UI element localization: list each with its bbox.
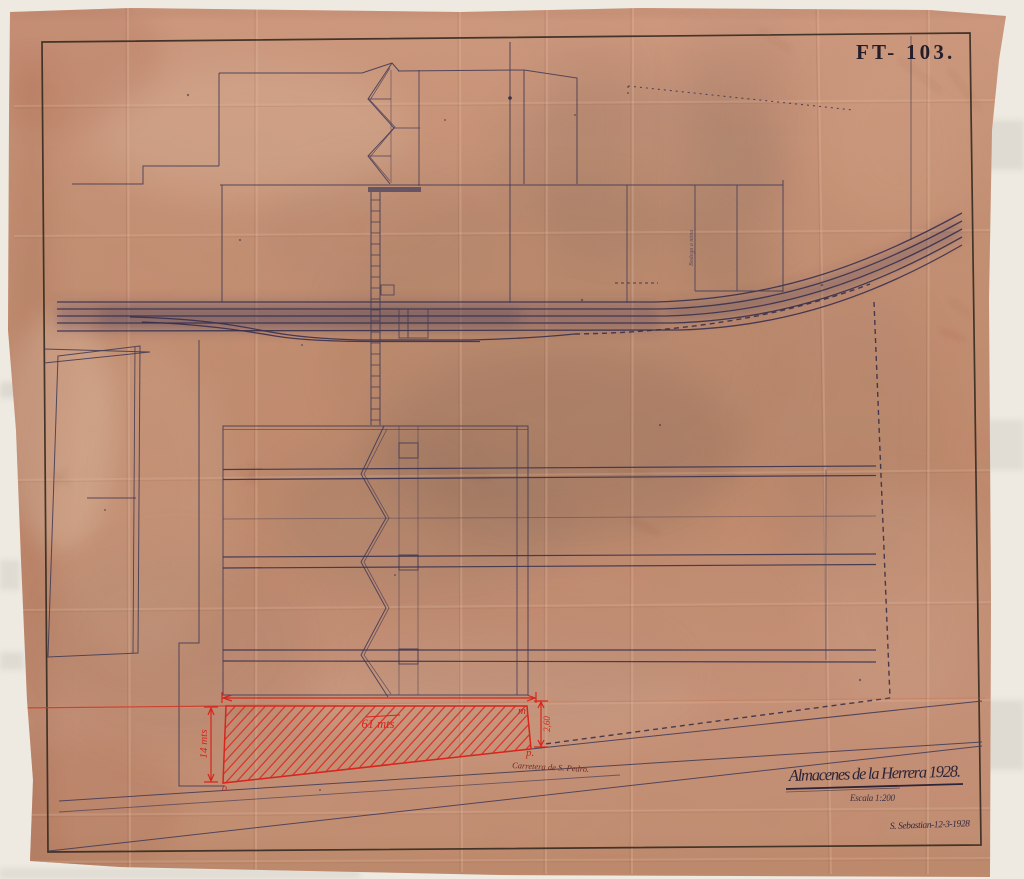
svg-text:m: m — [518, 705, 526, 717]
svg-text:2,60: 2,60 — [542, 716, 552, 732]
svg-text:Escala 1:200: Escala 1:200 — [849, 793, 896, 803]
svg-text:14 mts: 14 mts — [198, 729, 210, 758]
svg-text:p.: p. — [525, 747, 534, 759]
svg-text:61 mts: 61 mts — [362, 717, 395, 731]
svg-text:Bodega a mina: Bodega a mina — [689, 230, 695, 266]
svg-text:o.: o. — [222, 783, 230, 794]
svg-text:FT- 103.: FT- 103. — [856, 40, 956, 64]
